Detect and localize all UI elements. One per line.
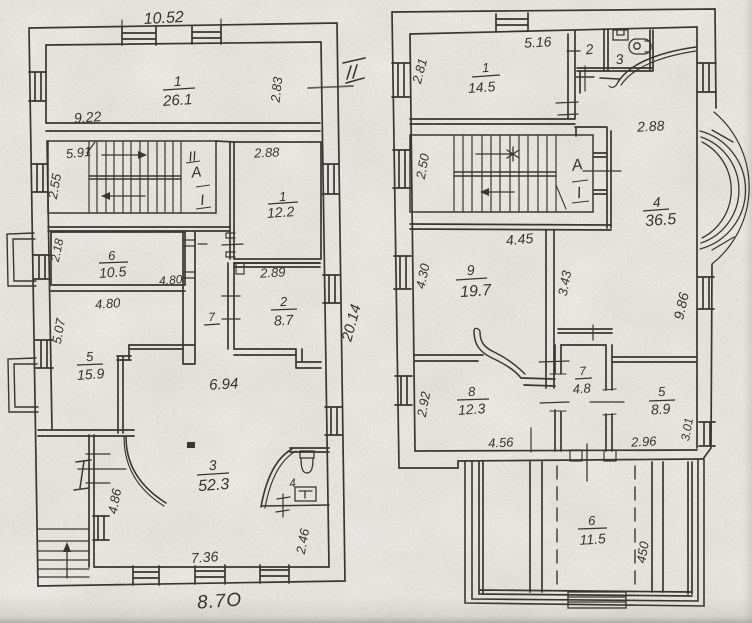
svg-text:10.52: 10.52 xyxy=(143,9,184,28)
svg-text:4: 4 xyxy=(652,194,661,211)
svg-text:8.9: 8.9 xyxy=(650,400,671,417)
svg-text:11.5: 11.5 xyxy=(579,530,606,548)
svg-text:1: 1 xyxy=(173,73,182,90)
svg-text:1: 1 xyxy=(482,60,490,75)
svg-text:8.7O: 8.7O xyxy=(196,589,243,613)
svg-text:2.88: 2.88 xyxy=(253,144,281,160)
svg-text:4.8: 4.8 xyxy=(572,380,592,396)
svg-text:36.5: 36.5 xyxy=(645,211,677,230)
svg-text:3: 3 xyxy=(208,457,217,474)
svg-text:2.83: 2.83 xyxy=(268,75,286,103)
svg-text:2.96: 2.96 xyxy=(630,433,658,449)
svg-text:26.1: 26.1 xyxy=(162,91,193,110)
svg-text:4.80: 4.80 xyxy=(95,295,122,312)
svg-text:5.91: 5.91 xyxy=(65,144,92,162)
svg-text:5.16: 5.16 xyxy=(524,33,552,50)
svg-text:2.88: 2.88 xyxy=(636,117,665,134)
svg-text:19.7: 19.7 xyxy=(460,282,493,301)
svg-text:6.94: 6.94 xyxy=(209,375,239,394)
svg-text:9: 9 xyxy=(466,262,475,279)
svg-text:2.89: 2.89 xyxy=(259,264,286,280)
svg-text:12.2: 12.2 xyxy=(267,203,296,221)
svg-text:7.36: 7.36 xyxy=(191,548,220,566)
svg-text:52.3: 52.3 xyxy=(198,476,230,495)
svg-text:1: 1 xyxy=(279,189,287,204)
svg-text:4.80: 4.80 xyxy=(159,272,184,288)
svg-text:12.3: 12.3 xyxy=(458,400,487,418)
svg-text:14.5: 14.5 xyxy=(468,78,497,96)
svg-text:8.7: 8.7 xyxy=(273,311,295,328)
svg-text:А: А xyxy=(189,163,202,181)
svg-text:15.9: 15.9 xyxy=(77,365,106,383)
svg-text:9.22: 9.22 xyxy=(74,108,103,126)
svg-text:10.5: 10.5 xyxy=(99,263,128,281)
svg-text:4.56: 4.56 xyxy=(488,434,515,450)
svg-text:4.45: 4.45 xyxy=(505,230,534,248)
